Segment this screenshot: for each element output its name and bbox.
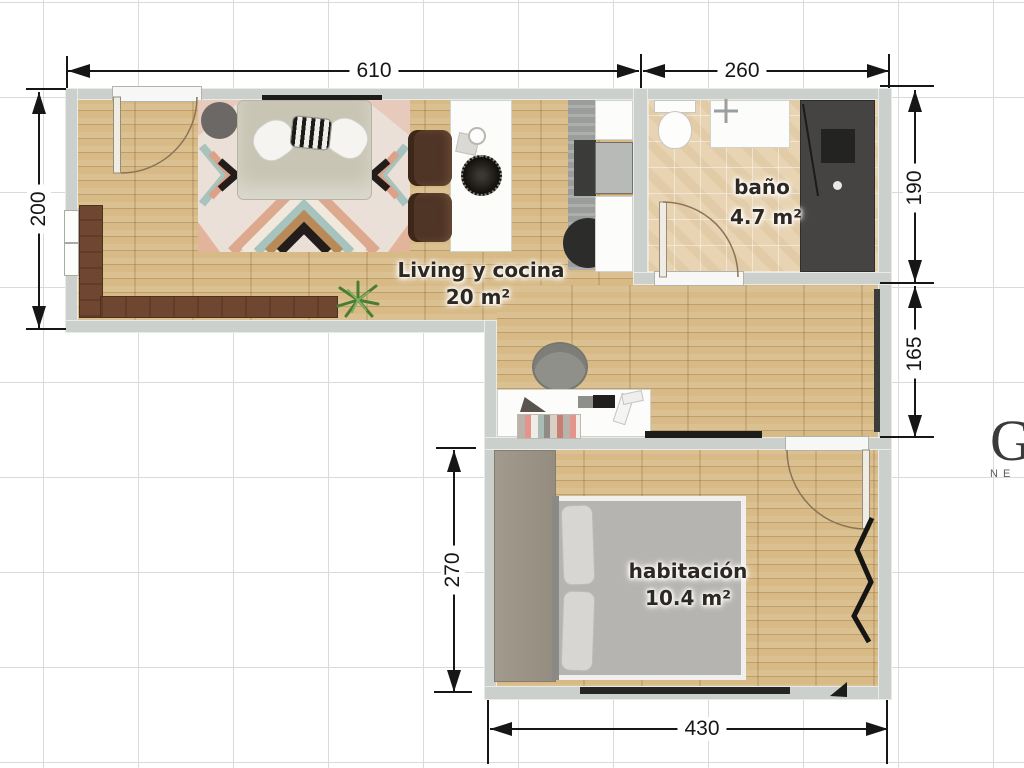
dim-tick [640, 54, 642, 88]
bedroom-area: 10.4 m² [645, 586, 731, 610]
dim-arrow [447, 450, 461, 472]
dim-tick [26, 88, 66, 90]
dim-tick [886, 700, 888, 764]
floor-plan: Living y cocina 20 m² baño 4.7 m² habita… [0, 0, 1024, 768]
plan-overlay [0, 0, 1024, 768]
dim-tick [880, 282, 934, 284]
dim-arrow [32, 92, 46, 114]
curtain-end [830, 682, 847, 697]
bathroom-door-swing-arc [663, 202, 738, 277]
dim-arrow [867, 64, 889, 78]
watermark-initial: G [990, 416, 1024, 466]
entry-door-leaf [114, 97, 121, 173]
bedroom-door-swing-arc [787, 450, 866, 529]
dim-arrow [866, 722, 888, 736]
entry-door-swing-arc [121, 97, 197, 173]
shower-glass [803, 104, 818, 196]
dim-label-200: 200 [27, 184, 51, 233]
dim-tick [66, 56, 68, 88]
dim-arrow [68, 64, 90, 78]
dim-tick [26, 328, 66, 330]
dim-arrow [617, 64, 639, 78]
dim-arrow [447, 670, 461, 692]
dim-arrow [490, 722, 512, 736]
living-room-label: Living y cocina [397, 258, 564, 282]
dim-label-260: 260 [717, 59, 766, 83]
dim-label-610: 610 [349, 59, 398, 83]
dim-tick [487, 700, 489, 764]
dim-label-165: 165 [903, 329, 927, 378]
dim-arrow [643, 64, 665, 78]
bathroom-label: baño [734, 175, 790, 199]
dim-tick [880, 436, 934, 438]
dim-label-270: 270 [441, 545, 465, 594]
dim-arrow [908, 286, 922, 308]
dim-arrow [908, 90, 922, 112]
curtain [854, 518, 872, 642]
bathroom-area: 4.7 m² [730, 205, 802, 229]
faucet [714, 99, 738, 123]
dim-arrow [908, 415, 922, 437]
bedroom-label: habitación [629, 559, 748, 583]
dim-tick [888, 54, 890, 88]
dim-label-430: 430 [677, 717, 726, 741]
dim-arrow [32, 306, 46, 328]
plant [338, 282, 378, 316]
watermark-logo: G NE [990, 416, 1024, 480]
dim-tick [880, 85, 934, 87]
dim-arrow [908, 260, 922, 282]
dim-tick [434, 691, 472, 693]
bathroom-door-leaf [660, 202, 667, 277]
dim-label-190: 190 [903, 163, 927, 212]
dim-tick [436, 447, 476, 449]
bedroom-door-leaf [863, 450, 870, 529]
living-room-area: 20 m² [446, 285, 510, 309]
